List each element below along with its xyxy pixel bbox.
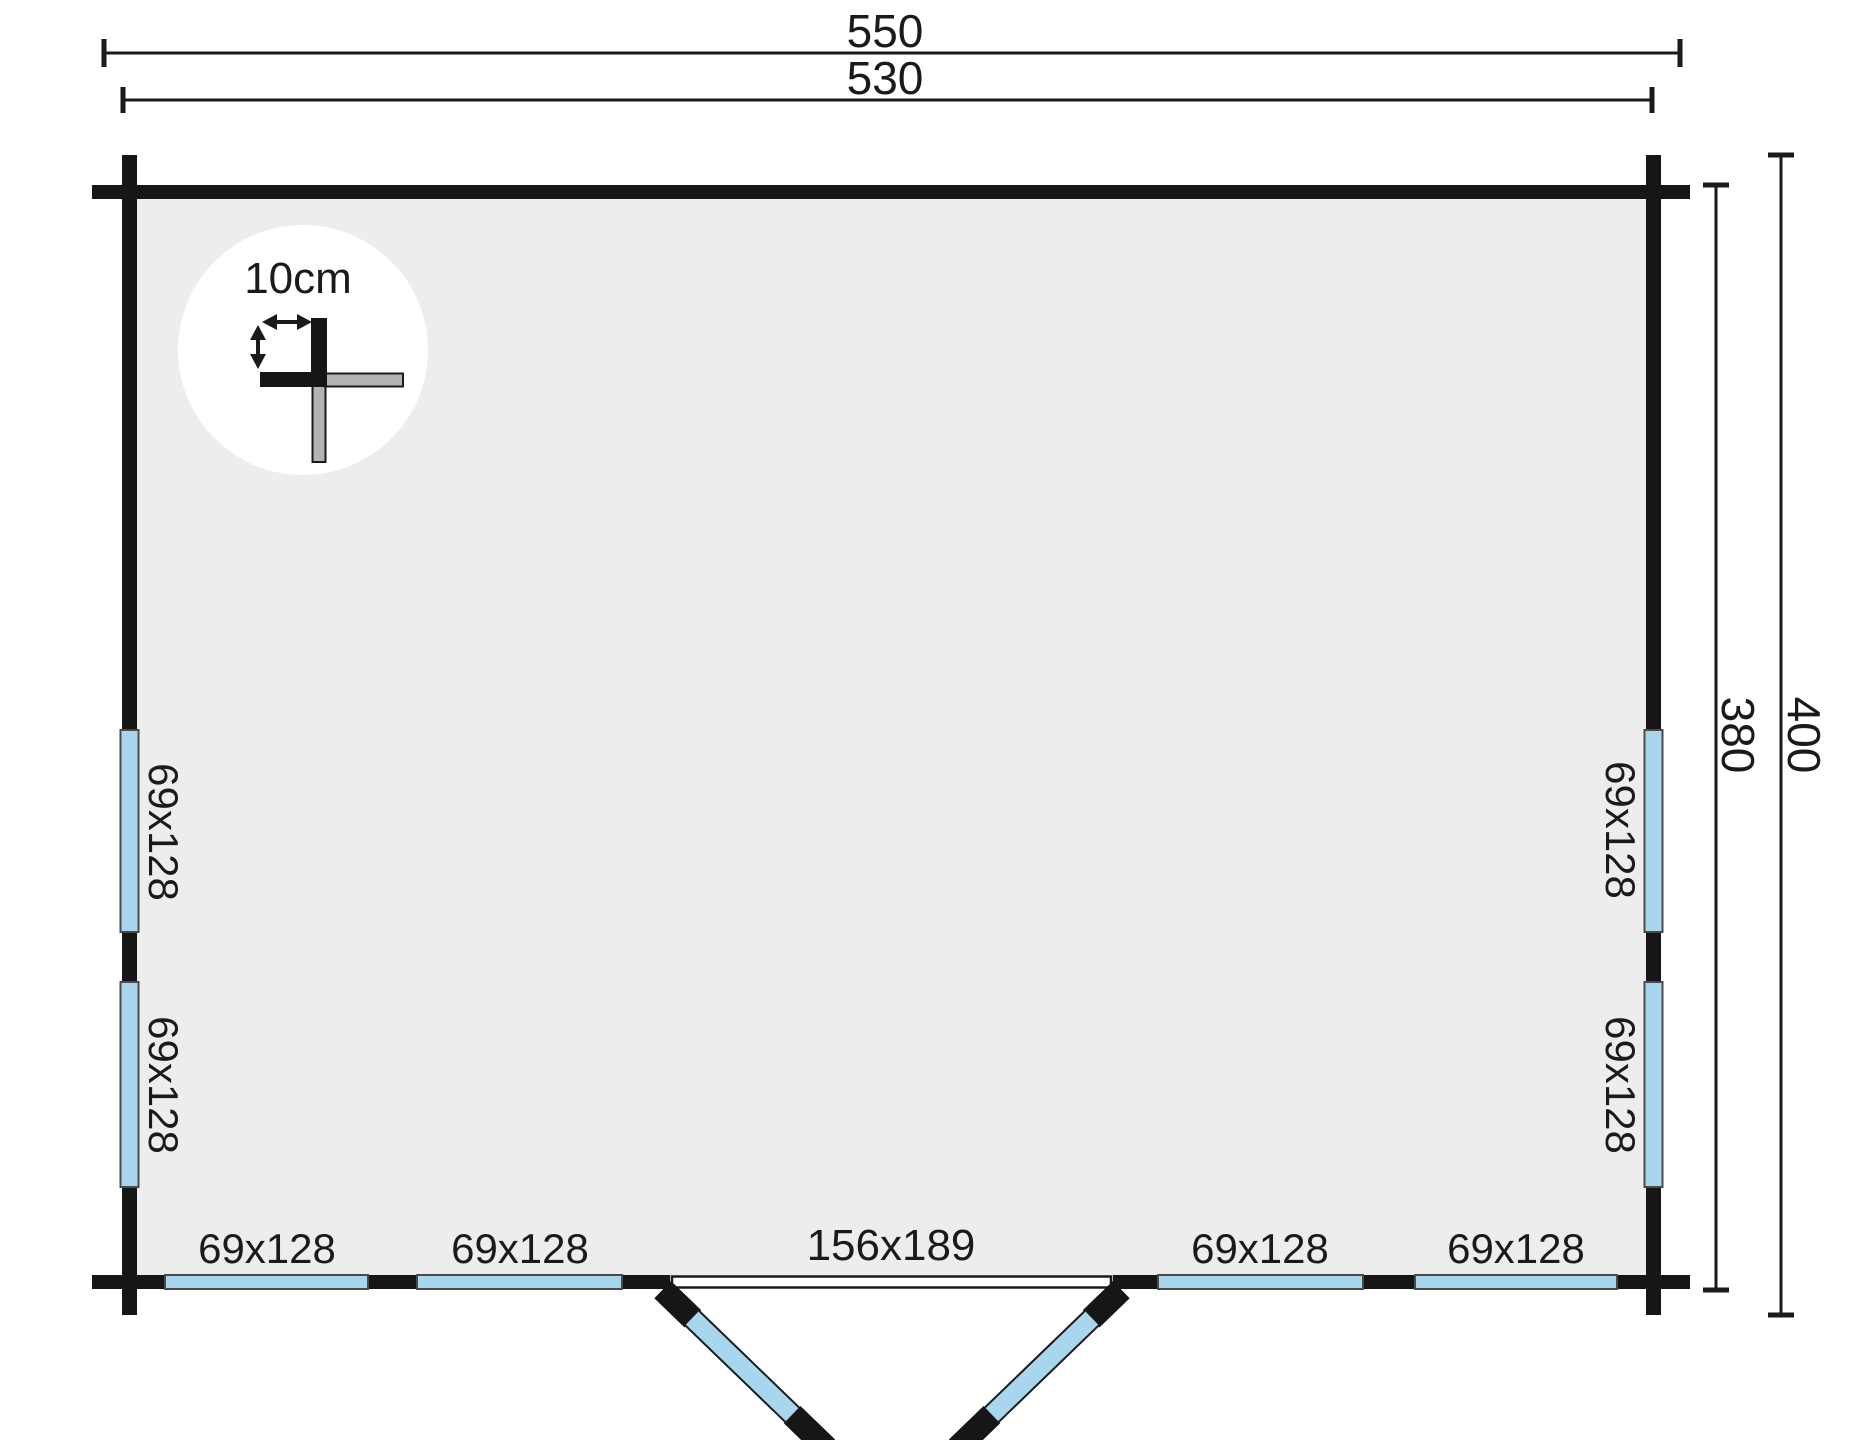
window-right-2 (1645, 982, 1663, 1187)
dimension-label-400: 400 (1778, 697, 1830, 774)
window-bottom-2-label: 69x128 (451, 1225, 589, 1272)
door-size-label: 156x189 (807, 1221, 976, 1270)
window-bottom-1 (165, 1275, 368, 1289)
window-right-1-label: 69x128 (1597, 761, 1644, 899)
detail-size-label: 10cm (244, 254, 352, 303)
window-left-2 (121, 982, 139, 1187)
window-right-1 (1645, 730, 1663, 932)
detail-log-end-vertical (313, 385, 326, 462)
window-bottom-3 (1158, 1275, 1363, 1289)
floor-plan-page: 10cm 550 530 380 400 69x1 (0, 0, 1854, 1440)
dimension-label-530: 530 (847, 52, 924, 104)
window-left-1 (121, 730, 139, 932)
door-leaf-right-panel (983, 1310, 1099, 1423)
window-bottom-4 (1415, 1275, 1617, 1289)
door-leaf-right (949, 1281, 1130, 1440)
window-left-2-label: 69x128 (140, 1016, 187, 1154)
detail-wall-arm-horizontal (260, 372, 327, 387)
door-leaf-left-panel (684, 1310, 800, 1423)
wall-top (92, 185, 1690, 199)
window-bottom-4-label: 69x128 (1447, 1225, 1585, 1272)
window-right-2-label: 69x128 (1597, 1016, 1644, 1154)
window-bottom-2 (417, 1275, 622, 1289)
door-leaf-left (654, 1281, 835, 1440)
window-bottom-3-label: 69x128 (1191, 1225, 1329, 1272)
dimension-label-380: 380 (1712, 697, 1764, 774)
window-left-1-label: 69x128 (140, 763, 187, 901)
detail-log-end-horizontal (325, 374, 403, 387)
window-bottom-1-label: 69x128 (198, 1225, 336, 1272)
floor-plan-drawing: 10cm 550 530 380 400 69x1 (0, 0, 1854, 1440)
door-threshold (672, 1277, 1111, 1288)
dimension-label-550: 550 (847, 5, 924, 57)
